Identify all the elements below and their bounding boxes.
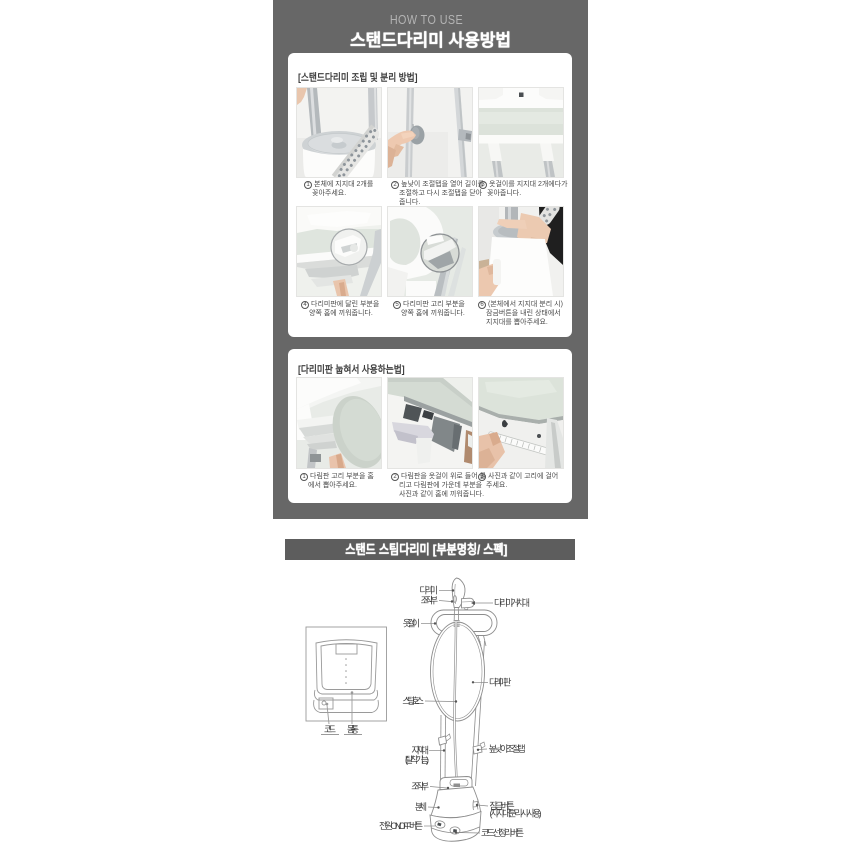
- svg-text:다리미판: 다리미판: [489, 678, 511, 688]
- svg-text:전원 ON/OFF버튼: 전원 ON/OFF버튼: [379, 821, 423, 831]
- svg-text:스팀호스: 스팀호스: [402, 695, 424, 706]
- svg-text:조작부: 조작부: [421, 596, 438, 606]
- svg-text:지지대: 지지대: [411, 746, 429, 756]
- svg-text:코드선 정리 버튼: 코드선 정리 버튼: [481, 828, 524, 838]
- svg-text:다리미: 다리미: [420, 586, 439, 596]
- svg-text:조작부: 조작부: [411, 782, 429, 792]
- svg-text:몸통: 몸통: [347, 725, 359, 735]
- svg-text:(탈착기능): (탈착기능): [405, 755, 429, 765]
- svg-text:옷걸이: 옷걸이: [403, 619, 420, 629]
- svg-text:본체: 본체: [415, 802, 427, 812]
- svg-text:코드: 코드: [324, 725, 336, 735]
- svg-text:높낮이 조절탭: 높낮이 조절탭: [489, 743, 526, 754]
- svg-text:(지지대 분리시 사용): (지지대 분리시 사용): [490, 809, 542, 819]
- svg-text:다리미 거치대: 다리미 거치대: [494, 597, 530, 608]
